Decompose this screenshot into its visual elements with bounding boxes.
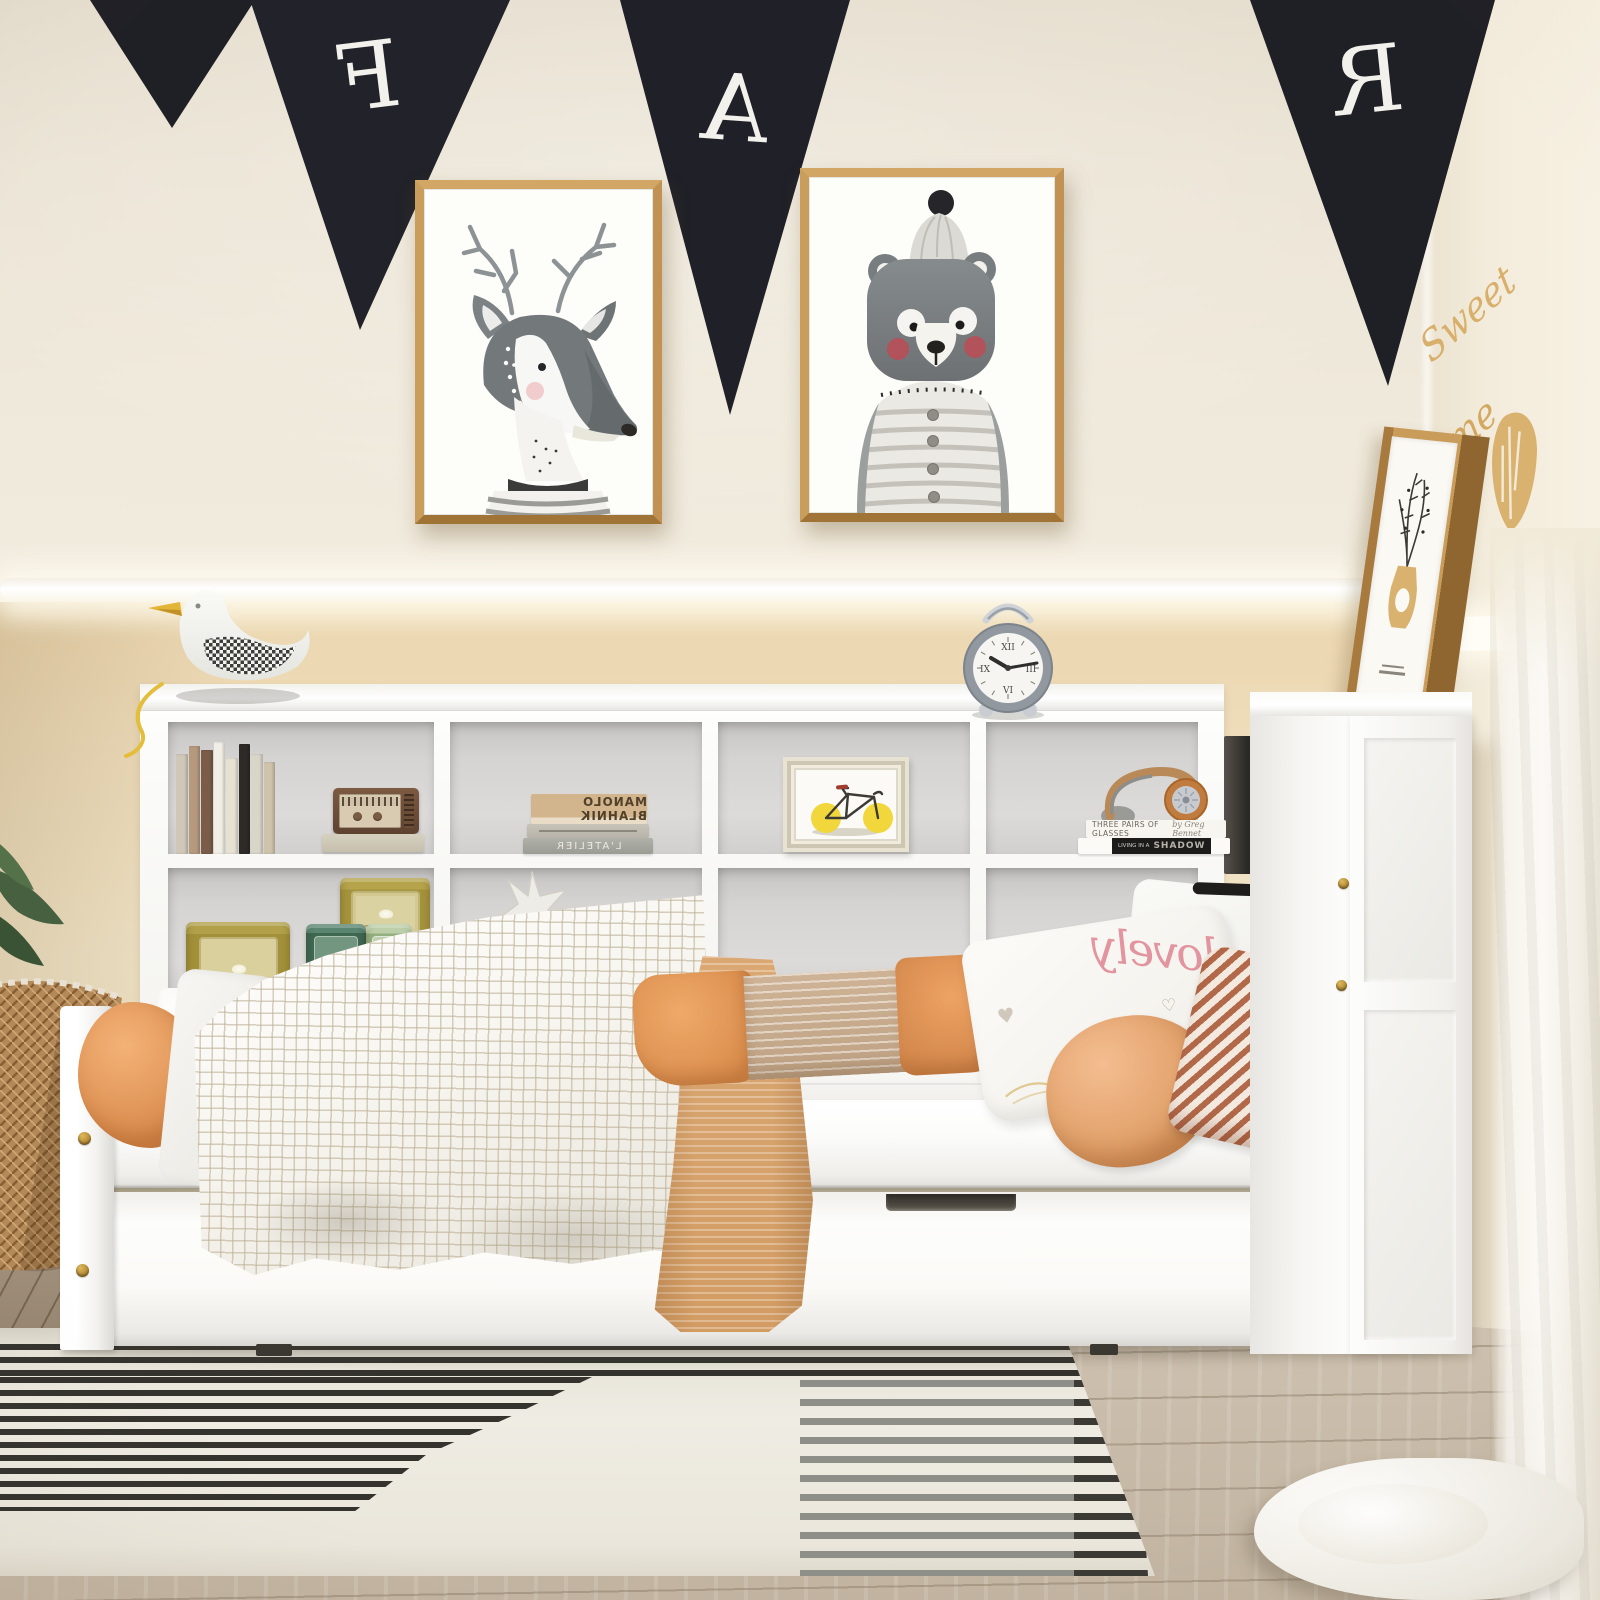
radio-grille (404, 794, 414, 828)
vintage-radio (333, 788, 419, 834)
deer-cheek (526, 382, 544, 400)
bear-print-frame (800, 168, 1064, 522)
bear-cheek-left (887, 338, 909, 360)
book-spine (214, 742, 226, 854)
bolster-striped-middle (743, 968, 906, 1080)
book-living-shadow: LIVING IN A SHADOW (1078, 838, 1230, 854)
book-row (176, 736, 276, 854)
radio-face (339, 794, 401, 828)
radio-dial (342, 797, 398, 806)
tin-motif (232, 964, 246, 973)
tower-side-face (1250, 702, 1352, 1354)
bird-shadow (176, 688, 300, 704)
rug-stripe-block-left (0, 1377, 592, 1511)
bear-cheek-right (964, 336, 986, 358)
tower-front-face (1350, 714, 1472, 1354)
bolster-end-left (631, 970, 757, 1088)
book-title-word: SHADOW (1153, 841, 1205, 851)
tower-panel-lower (1364, 1010, 1456, 1340)
book-middle (527, 824, 649, 838)
clock-numeral-vi: VI (1002, 686, 1013, 696)
book-spine (201, 750, 213, 854)
banner-letter-f: F (330, 20, 406, 134)
yellow-cord (118, 680, 184, 764)
bedroom-scene: F A R (0, 0, 1600, 1600)
curtain-hem-fold (1298, 1484, 1488, 1564)
bear-watercolor (809, 177, 1055, 513)
radio-stand-book (322, 834, 424, 852)
brass-screw (1338, 878, 1349, 889)
book-three-pairs: THREE PAIRS OF GLASSES by Greg Bennet (1086, 820, 1226, 838)
book-title: THREE PAIRS OF GLASSES (1092, 820, 1172, 838)
clock-numeral-iii: III (1026, 665, 1037, 675)
headphones (1094, 760, 1218, 826)
clock-center (1005, 665, 1011, 671)
pillow-graphic-mark (1193, 882, 1259, 896)
brass-screw (1336, 980, 1347, 991)
clock-numeral-ix: IX (980, 665, 991, 675)
sweet-word: Sweet (1413, 255, 1524, 372)
heart-icon: ♡ (1160, 995, 1178, 1017)
book-latelier: L'ATELIER (523, 838, 653, 854)
bear-nose (927, 341, 945, 354)
book-spine (226, 758, 238, 854)
bicycle-print-mat (796, 770, 896, 839)
bolster-pillow (631, 950, 1021, 1098)
curtain-top-fade (1490, 528, 1600, 678)
book-title-prefix: LIVING IN A (1118, 843, 1149, 849)
trundle-handle-notch (886, 1194, 1016, 1211)
deer-antlers (464, 225, 614, 313)
side-storage-tower (1250, 692, 1472, 1354)
deer-eye (538, 363, 546, 371)
bear-pupil-right (956, 321, 965, 330)
bear-pompom (928, 190, 954, 216)
heart-icon: ♥ (995, 1002, 1016, 1029)
clock-numeral-xii: XII (1001, 643, 1015, 653)
book-title: L'ATELIER (555, 841, 622, 852)
pennant-plain (90, 0, 255, 128)
curtain-hem (1254, 1458, 1584, 1600)
alarm-clock: XII III VI IX (946, 592, 1072, 720)
brass-screw (76, 1264, 89, 1277)
tower-panel-upper (1364, 738, 1456, 982)
book-author: by Greg Bennet (1172, 820, 1220, 838)
book-text-line (539, 830, 637, 832)
bicycle-print-frame (783, 757, 909, 852)
earcup-center (1183, 797, 1190, 804)
radio-knob (353, 812, 362, 821)
banner-letter-a: A (697, 53, 773, 165)
book-spine (264, 762, 276, 854)
deer-watercolor (424, 189, 653, 515)
plant-leaves (0, 838, 74, 993)
tower-top-surface (1250, 692, 1472, 716)
book-spine (176, 754, 188, 854)
tin-motif (379, 909, 393, 918)
book-spine (251, 754, 263, 854)
book-title-panel: LIVING IN A SHADOW (1112, 838, 1211, 854)
book-spine (189, 746, 201, 854)
book-manolo-blahnik: MANOLO BLAHNIK (531, 794, 647, 824)
book-spine (239, 744, 251, 854)
radio-knob (373, 812, 382, 821)
book-title: MANOLO BLAHNIK (531, 795, 647, 823)
sheer-curtain (1490, 528, 1600, 1600)
bicycle-art (796, 770, 896, 839)
bird-eye (196, 604, 201, 609)
banner-letter-r: R (1326, 24, 1409, 138)
bed-foot (256, 1344, 292, 1356)
bed-foot (1090, 1344, 1118, 1355)
deer-print-frame (415, 180, 662, 524)
